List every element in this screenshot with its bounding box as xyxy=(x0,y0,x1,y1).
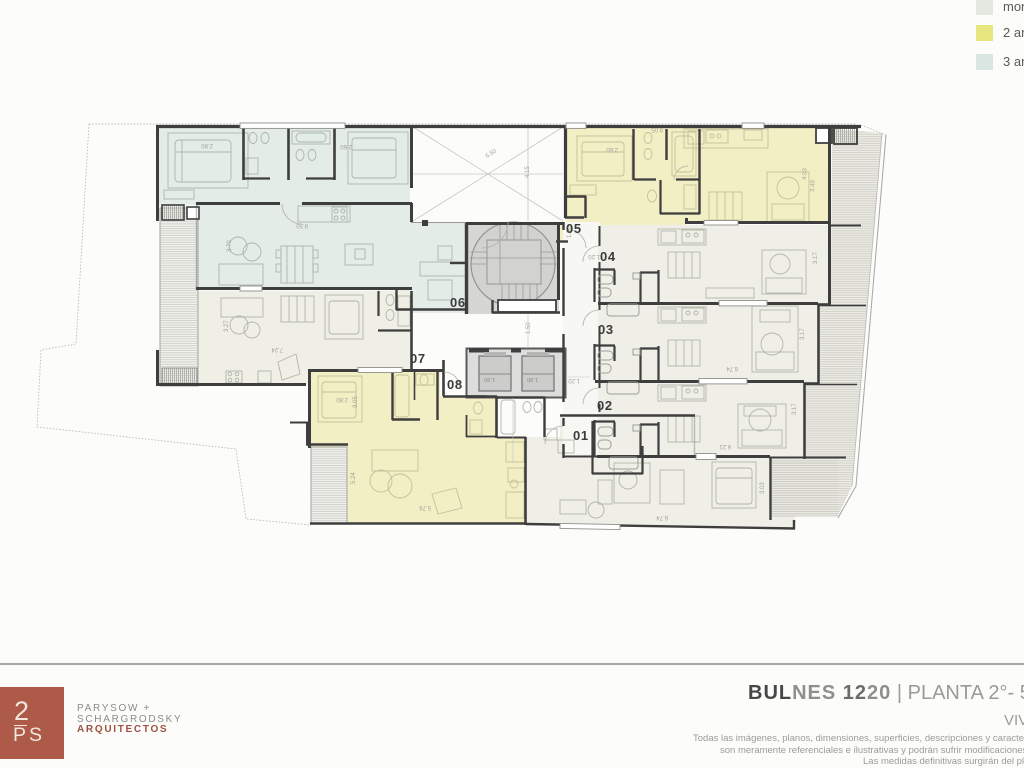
svg-text:08: 08 xyxy=(447,377,463,392)
svg-text:1.20: 1.20 xyxy=(588,253,600,259)
svg-text:07: 07 xyxy=(410,351,426,366)
svg-text:1.50: 1.50 xyxy=(526,322,532,334)
svg-text:3.70: 3.70 xyxy=(227,240,233,252)
svg-text:2.60: 2.60 xyxy=(340,143,352,149)
svg-text:4.15: 4.15 xyxy=(525,166,531,178)
svg-text:1.90: 1.90 xyxy=(484,376,495,382)
svg-text:04: 04 xyxy=(600,249,616,264)
svg-text:02: 02 xyxy=(597,398,613,413)
svg-text:03: 03 xyxy=(598,322,614,337)
svg-text:06: 06 xyxy=(450,295,466,310)
svg-text:05: 05 xyxy=(566,221,582,236)
svg-text:1.90: 1.90 xyxy=(527,376,538,382)
svg-text:2.60: 2.60 xyxy=(606,146,618,152)
svg-text:01: 01 xyxy=(573,428,589,443)
svg-text:9.05: 9.05 xyxy=(651,126,663,132)
svg-text:7.24: 7.24 xyxy=(271,346,283,352)
svg-text:3.17: 3.17 xyxy=(800,328,806,340)
svg-text:1.20: 1.20 xyxy=(568,377,580,383)
svg-text:8.50: 8.50 xyxy=(296,222,308,228)
svg-text:3.17: 3.17 xyxy=(792,403,798,415)
svg-text:6.21: 6.21 xyxy=(719,443,731,449)
svg-text:5.24: 5.24 xyxy=(351,472,357,484)
svg-text:3.03: 3.03 xyxy=(760,482,766,494)
svg-text:6.74: 6.74 xyxy=(726,365,738,371)
svg-text:3.27: 3.27 xyxy=(224,320,230,332)
svg-text:3.05: 3.05 xyxy=(353,396,359,408)
svg-text:6.74: 6.74 xyxy=(656,514,668,520)
svg-text:2.80: 2.80 xyxy=(336,396,348,402)
svg-text:4.03: 4.03 xyxy=(802,167,809,180)
svg-text:2.80: 2.80 xyxy=(201,142,213,148)
svg-text:3.17: 3.17 xyxy=(813,252,819,264)
svg-text:5.78: 5.78 xyxy=(419,504,431,510)
svg-text:3.40: 3.40 xyxy=(810,179,817,192)
